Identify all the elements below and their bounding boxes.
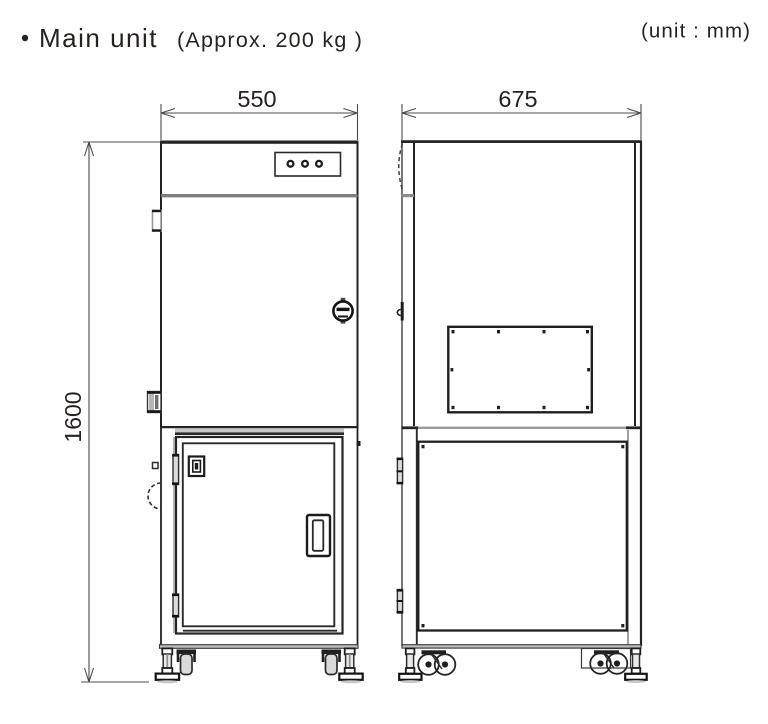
svg-text:(unit : mm): (unit : mm) bbox=[641, 20, 751, 43]
svg-text:550: 550 bbox=[237, 86, 276, 112]
svg-text:Main unit: Main unit bbox=[39, 23, 158, 53]
svg-text:(Approx. 200 kg ): (Approx. 200 kg ) bbox=[177, 28, 363, 52]
svg-text:1600: 1600 bbox=[60, 391, 86, 442]
svg-text:675: 675 bbox=[498, 86, 537, 112]
